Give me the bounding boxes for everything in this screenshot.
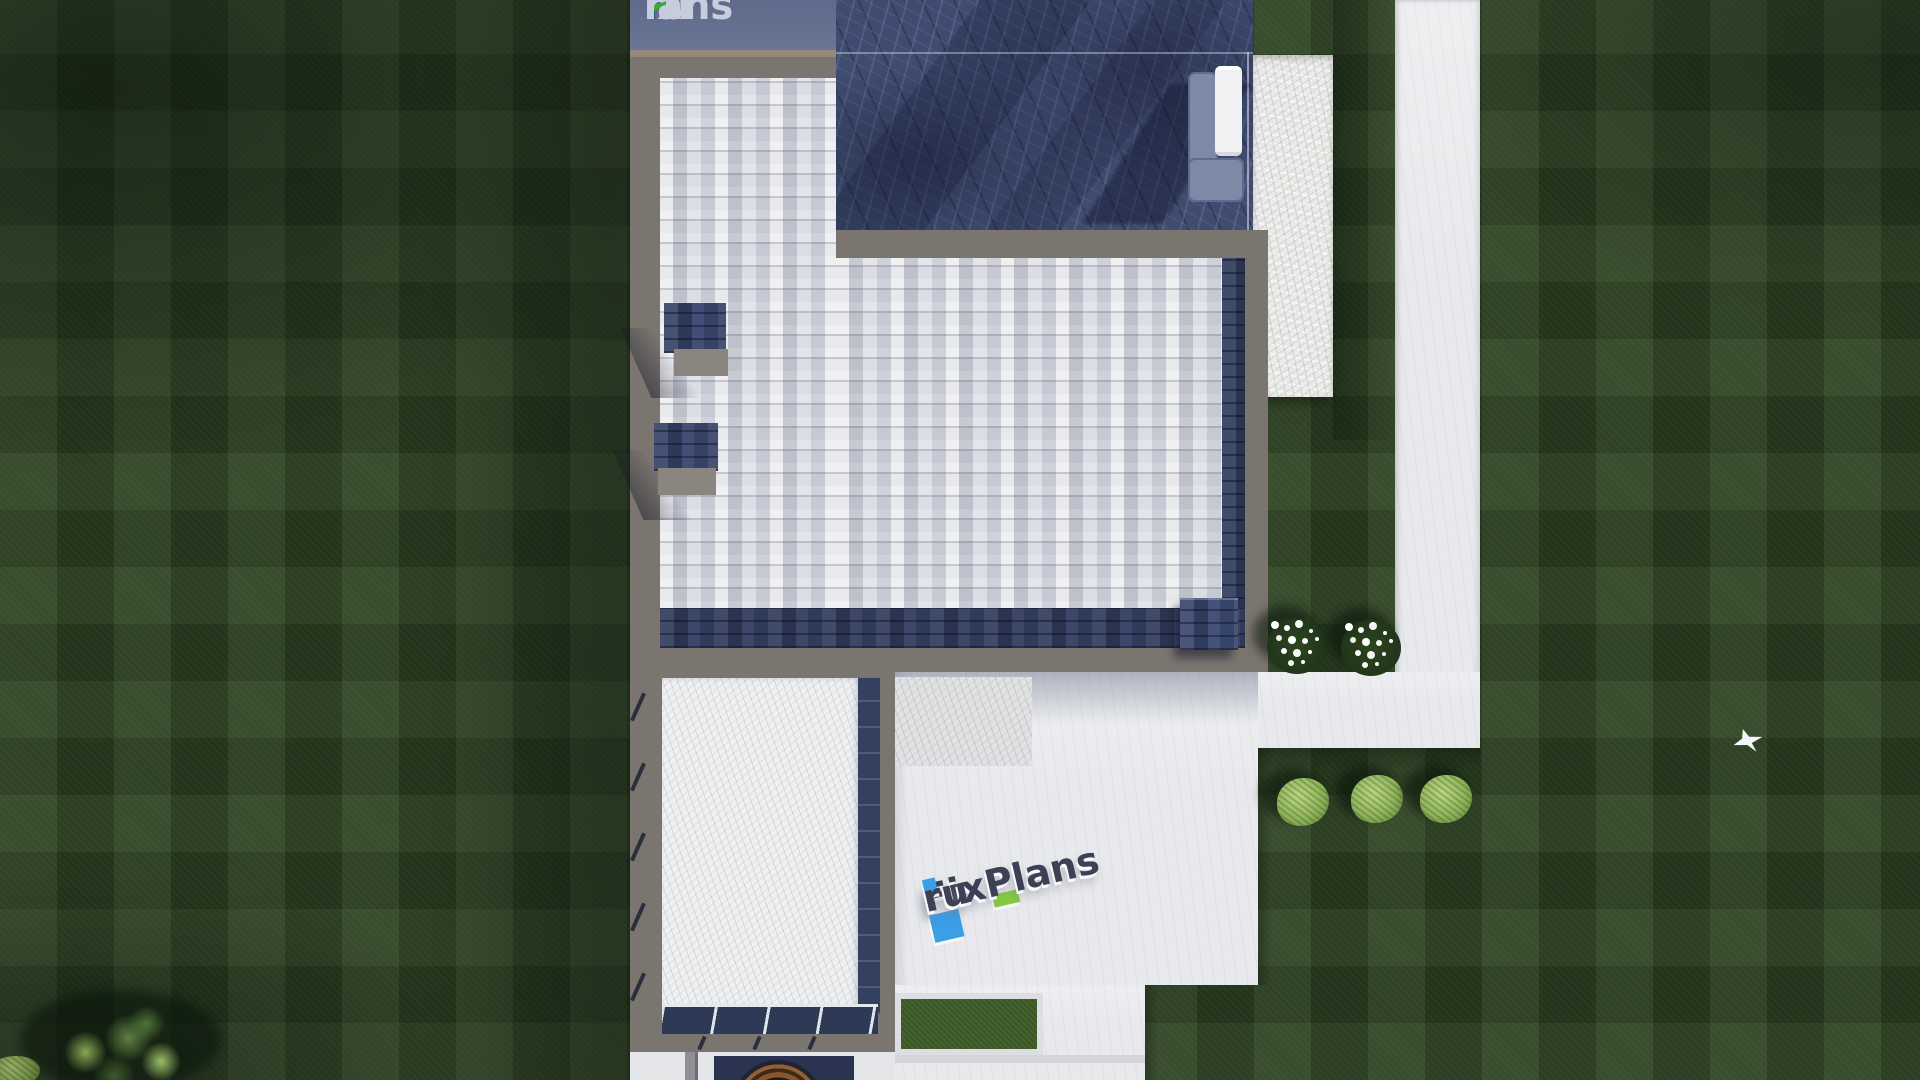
fence-shadow-tick <box>630 762 646 791</box>
flower-bush-2 <box>1341 620 1401 676</box>
roof-hatch-2-top <box>654 423 718 471</box>
side-walkway-vertical <box>1395 0 1480 748</box>
flower-bush-1 <box>1267 618 1327 674</box>
carport-block <box>630 672 895 1052</box>
beam-shadow-tick <box>752 1036 761 1050</box>
carport-roof <box>662 678 860 1008</box>
garden-tree <box>35 1000 215 1080</box>
fence-shadow-tick <box>630 692 646 721</box>
garden-path-horizontal <box>1256 672 1480 748</box>
logo-band-edge <box>630 50 836 57</box>
glass-railing <box>1247 52 1249 230</box>
entry-post <box>685 1052 698 1080</box>
roof-hatch-1-top <box>664 303 726 353</box>
beam-shadow-tick <box>807 1036 816 1050</box>
terrace-deck <box>836 0 1253 230</box>
fence-shadow-tick <box>630 972 646 1001</box>
roof-parapet-east <box>1245 230 1268 672</box>
flower-petals <box>1345 623 1353 631</box>
roof-hatch-1-face <box>674 349 728 376</box>
curb-strip <box>895 1055 1145 1063</box>
watermark-tld: ru <box>919 871 972 918</box>
logo-letter: ru <box>644 0 690 26</box>
pergola-band <box>662 1004 878 1034</box>
shingle-roof-main <box>836 258 1222 612</box>
navy-roof-strip-east <box>1222 258 1245 612</box>
roof-hatch-2-face <box>658 468 716 495</box>
flower-petals <box>1271 621 1279 629</box>
aerial-house-render: FixPlans.ru <box>0 0 1920 1080</box>
fence-shadow-tick <box>630 902 646 931</box>
roof-chimney-east <box>1180 598 1238 650</box>
navy-roof-strip-south <box>660 608 1245 648</box>
outdoor-sofa-chaise <box>1188 158 1244 202</box>
patio-paver-square <box>893 677 1032 766</box>
terrace-parapet-line <box>836 52 1253 54</box>
lawn-inset <box>895 993 1043 1055</box>
beam-shadow-tick <box>697 1036 706 1050</box>
carport-slat-strip <box>858 678 880 1014</box>
carport-entry-strip <box>630 1052 895 1080</box>
sofa-pillows <box>1215 66 1242 156</box>
fence-shadow-tick <box>630 832 646 861</box>
